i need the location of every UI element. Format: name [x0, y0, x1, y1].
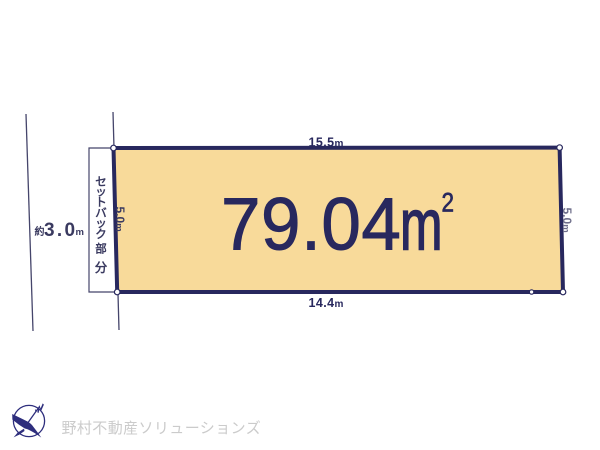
svg-text:2: 2	[442, 189, 455, 218]
svg-text:5.0m: 5.0m	[113, 207, 127, 232]
svg-text:分: 分	[95, 260, 108, 275]
svg-text:野村不動産ソリューションズ: 野村不動産ソリューションズ	[62, 420, 262, 437]
svg-text:約: 約	[35, 225, 45, 238]
svg-text:部: 部	[95, 242, 107, 256]
svg-text:79.04: 79.04	[221, 183, 401, 266]
svg-text:ク: ク	[95, 228, 107, 241]
svg-text:15.5m: 15.5m	[309, 136, 344, 150]
svg-text:3.0: 3.0	[44, 220, 77, 241]
svg-text:5.0m: 5.0m	[560, 208, 574, 233]
svg-text:m: m	[76, 227, 84, 238]
svg-text:m: m	[400, 185, 442, 266]
svg-text:14.4m: 14.4m	[309, 296, 344, 310]
